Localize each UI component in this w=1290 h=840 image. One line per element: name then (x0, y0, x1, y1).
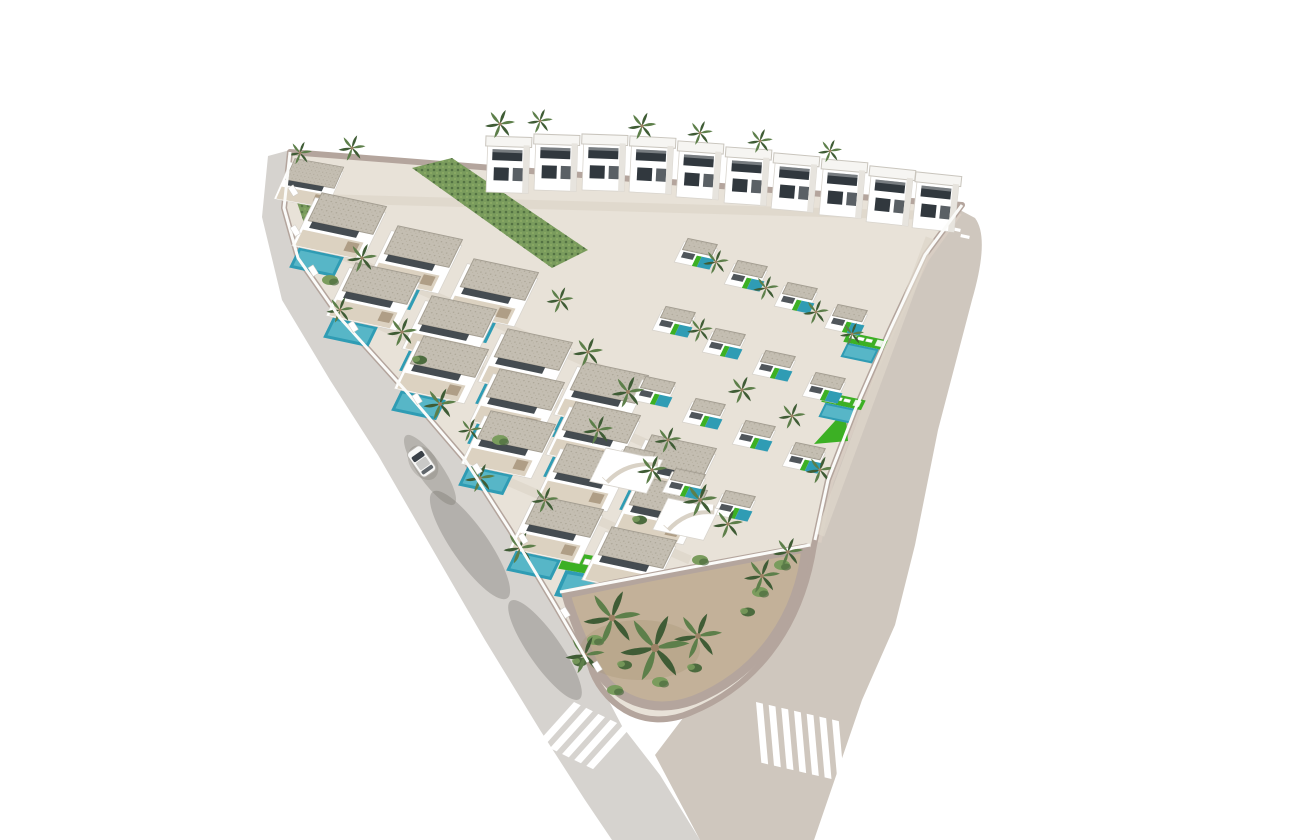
two-story-villa (532, 134, 580, 192)
two-story-villa (627, 136, 676, 194)
two-story-villa (674, 141, 724, 200)
scene-svg (0, 0, 1290, 840)
two-story-villa (769, 153, 820, 213)
two-story-villa (722, 147, 772, 206)
aerial-render-figure (0, 0, 1290, 840)
two-story-villa (910, 172, 962, 233)
two-story-villa (484, 136, 532, 194)
two-story-villa (864, 166, 916, 227)
two-story-villa (580, 134, 628, 192)
two-story-villa (817, 159, 868, 219)
